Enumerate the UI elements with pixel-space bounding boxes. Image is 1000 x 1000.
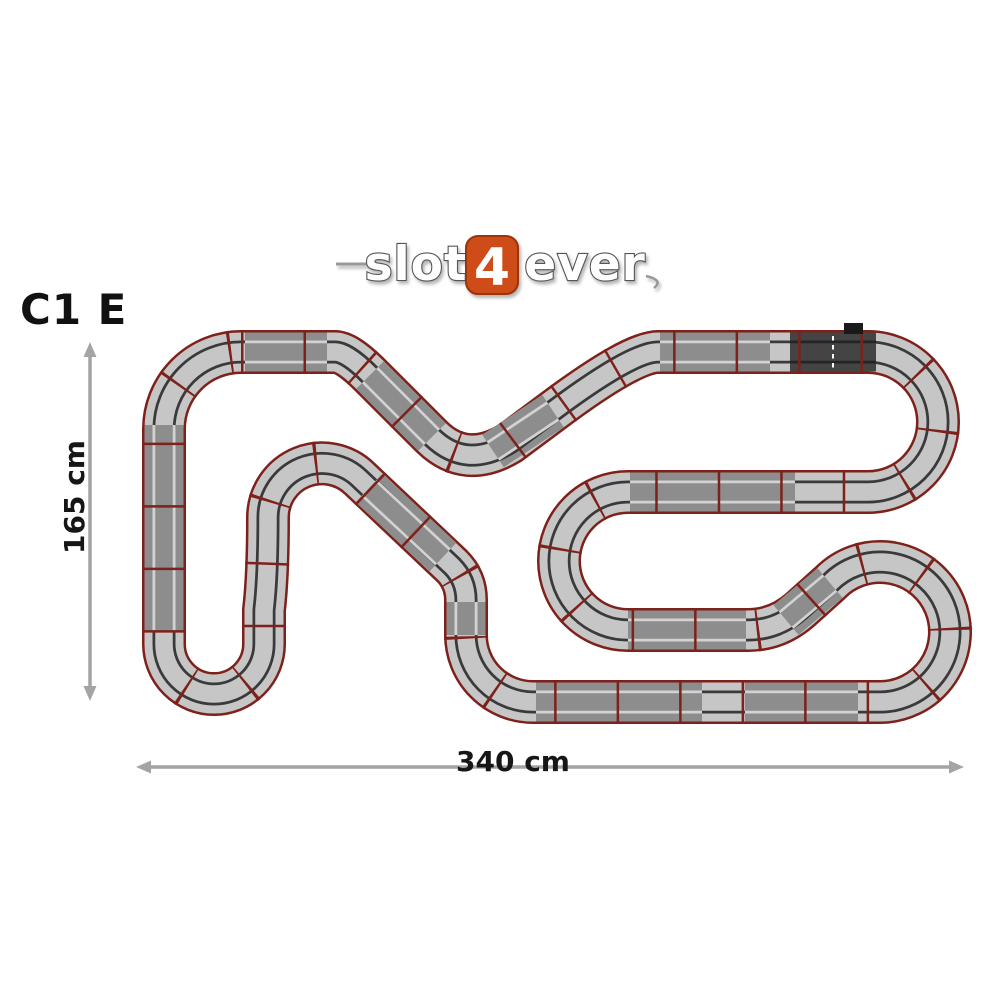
height-dimension: 165 cm: [58, 342, 97, 701]
slot4ever-logo: slot 4 ever: [336, 236, 658, 298]
arrow-left-icon: [136, 761, 151, 774]
arrow-up-icon: [84, 342, 97, 357]
logo-text-ever: ever: [524, 237, 646, 292]
layout-code-label: C1 E: [20, 285, 127, 334]
arrow-right-icon: [949, 761, 964, 774]
track-connector-tab: [844, 323, 863, 334]
track-layout-diagram: slot 4 ever C1 E 165 cm 340 cm: [0, 0, 1000, 1000]
height-dimension-label: 165 cm: [58, 440, 91, 554]
logo-swoosh-right: [646, 276, 658, 288]
width-dimension-label: 340 cm: [456, 745, 570, 778]
track-circuit: [164, 323, 950, 702]
logo-badge-number: 4: [474, 238, 510, 298]
logo-text-slot: slot: [365, 237, 468, 292]
width-dimension: 340 cm: [136, 745, 964, 778]
diagram-canvas: slot 4 ever C1 E 165 cm 340 cm: [0, 0, 1000, 1000]
arrow-down-icon: [84, 686, 97, 701]
